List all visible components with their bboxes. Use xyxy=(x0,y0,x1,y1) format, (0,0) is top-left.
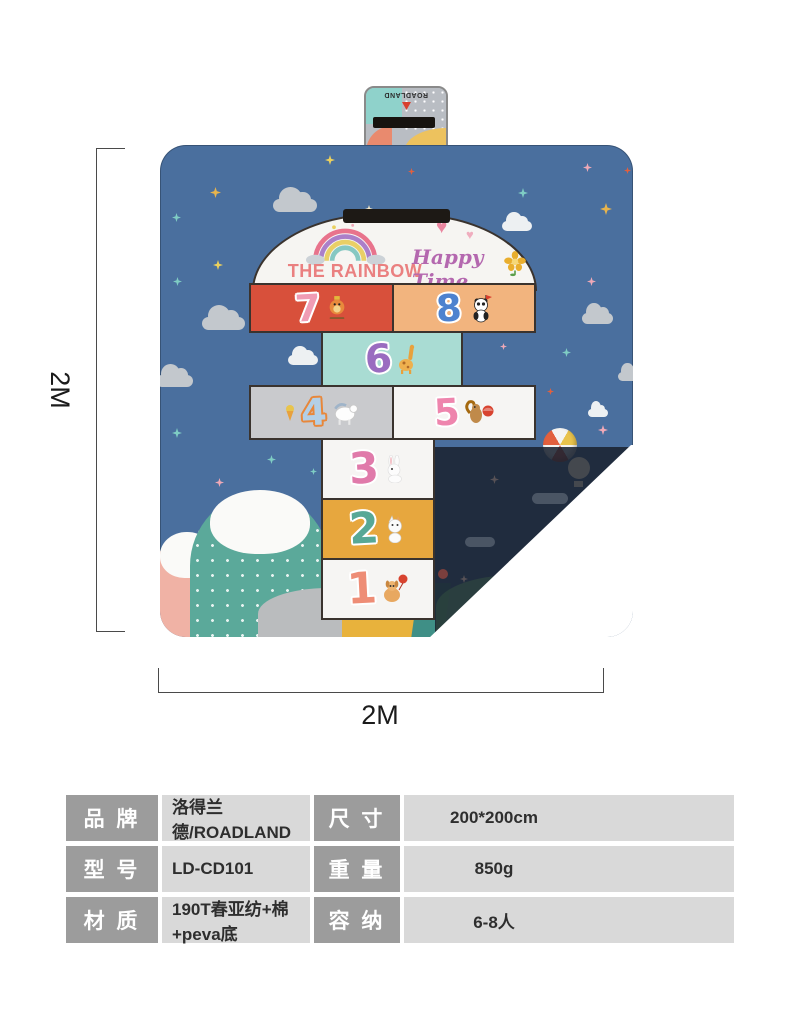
mat-header-dome: THE RAINBOW ♥ ♥ Happy Time xyxy=(252,213,537,291)
star-icon xyxy=(173,277,182,286)
star-icon xyxy=(408,168,415,175)
rabbit-icon xyxy=(383,455,407,483)
star-icon xyxy=(210,187,221,198)
horse-icon xyxy=(331,400,359,426)
star-icon xyxy=(325,155,335,165)
star-icon xyxy=(583,163,592,172)
dim-cloud-icon xyxy=(532,493,568,504)
cloud-icon xyxy=(160,375,193,387)
panda-icon xyxy=(466,293,492,323)
star-icon xyxy=(562,348,571,357)
cell-number-7: 7 xyxy=(294,289,322,327)
spec-value-material: 190T春亚纺+棉+peva底 xyxy=(162,897,310,943)
cell-number-1: 1 xyxy=(345,567,377,612)
spec-value-brand: 洛得兰德/ROADLAND xyxy=(162,795,310,841)
height-dimension-bracket xyxy=(96,148,125,632)
snow-cap xyxy=(210,490,311,554)
hopscotch-cell-4: 4 xyxy=(249,385,394,440)
cloud-icon xyxy=(588,409,608,417)
star-icon xyxy=(518,188,528,198)
star-icon xyxy=(600,203,612,215)
spec-label-model: 型 号 xyxy=(66,846,158,892)
star-icon xyxy=(215,478,224,487)
hopscotch-cell-5: 5 xyxy=(392,385,536,440)
dim-cloud-icon xyxy=(465,537,495,547)
cloud-icon xyxy=(618,372,633,381)
star-icon xyxy=(213,260,223,270)
cloud-icon xyxy=(582,313,613,324)
hopscotch-cell-7: 7 xyxy=(249,283,394,333)
spec-label-brand: 品 牌 xyxy=(66,795,158,841)
rainbow-icon xyxy=(306,223,390,265)
dim-balloon-icon xyxy=(568,457,590,479)
spec-table: 品 牌 洛得兰德/ROADLAND 尺 寸 200*200cm 型 号 LD-C… xyxy=(66,795,730,943)
star-icon xyxy=(172,428,182,438)
dim-balloon-dot xyxy=(438,569,448,579)
hopscotch-cell-6: 6 xyxy=(321,331,463,387)
cloud-icon xyxy=(273,199,317,212)
star-icon xyxy=(172,213,181,222)
tag-strap-slot xyxy=(373,117,435,128)
squirrel-icon xyxy=(464,399,494,427)
width-dimension-bracket xyxy=(158,668,604,693)
spec-label-size: 尺 寸 xyxy=(314,795,400,841)
hang-tag: ROADLAND xyxy=(364,86,448,154)
cell-number-2: 2 xyxy=(347,507,379,552)
star-icon xyxy=(500,343,507,350)
cell-number-4: 4 xyxy=(300,393,328,431)
dim-balloon-basket xyxy=(574,481,583,487)
spec-value-weight: 850g xyxy=(404,846,734,892)
hopscotch-cell-1: 1 xyxy=(321,558,435,620)
hopscotch-cell-3: 3 xyxy=(321,438,435,500)
tag-brand-text: ROADLAND xyxy=(366,91,446,98)
star-icon xyxy=(267,455,276,464)
cloud-icon xyxy=(288,355,318,365)
handle-slot xyxy=(343,209,450,223)
spec-label-material: 材 质 xyxy=(66,897,158,943)
product-page: ROADLAND xyxy=(0,0,790,1014)
cell-number-5: 5 xyxy=(433,393,461,431)
ice-cream-icon xyxy=(284,404,296,422)
spec-value-model: LD-CD101 xyxy=(162,846,310,892)
spec-value-size: 200*200cm xyxy=(404,795,734,841)
hopscotch-cell-2: 2 xyxy=(321,498,435,560)
star-icon xyxy=(587,277,596,286)
spec-label-weight: 重 量 xyxy=(314,846,400,892)
star-icon xyxy=(624,167,631,174)
height-dimension-label: 2M xyxy=(44,360,76,420)
picnic-mat: THE RAINBOW ♥ ♥ Happy Time 7 xyxy=(160,145,633,637)
giraffe-icon xyxy=(397,344,419,374)
cloud-icon xyxy=(202,317,245,330)
dog-icon xyxy=(381,574,409,604)
bird-icon xyxy=(326,295,348,321)
dim-star-icon xyxy=(490,475,499,484)
star-icon xyxy=(598,425,608,435)
star-icon xyxy=(547,388,554,395)
cell-number-8: 8 xyxy=(435,289,463,327)
flower-icon xyxy=(504,251,526,277)
cat-icon xyxy=(383,515,407,543)
spec-label-capacity: 容 纳 xyxy=(314,897,400,943)
width-dimension-label: 2M xyxy=(330,700,430,731)
star-icon xyxy=(310,468,317,475)
spec-value-capacity: 6-8人 xyxy=(404,897,734,943)
cell-number-6: 6 xyxy=(364,339,393,379)
cell-number-3: 3 xyxy=(347,447,379,492)
hopscotch-cell-8: 8 xyxy=(392,283,536,333)
heart-icon: ♥ xyxy=(466,227,474,242)
cloud-icon xyxy=(502,221,532,231)
